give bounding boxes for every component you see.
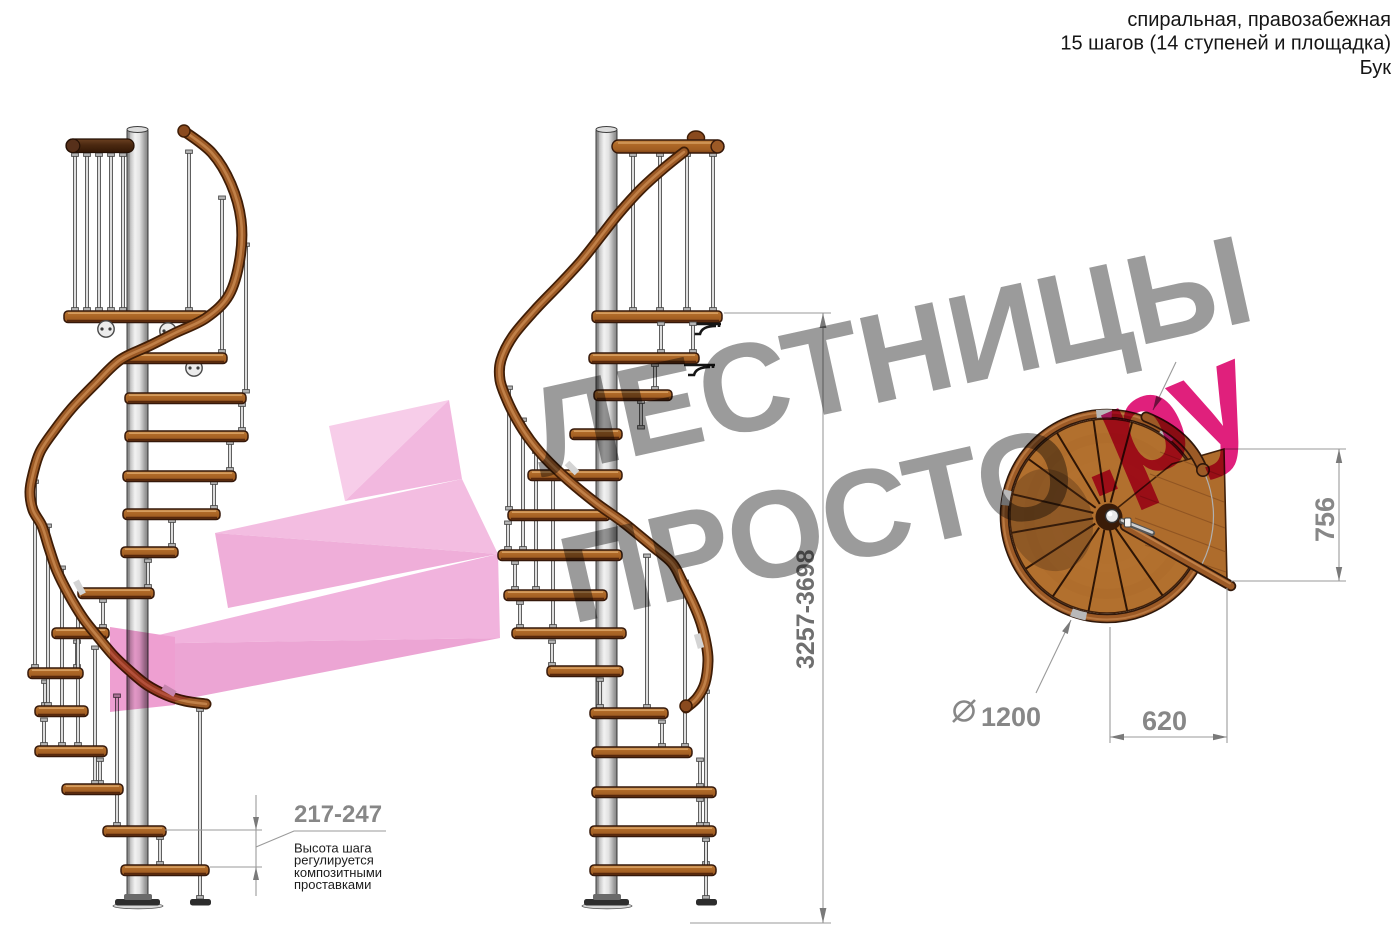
svg-text:спиральная, правозабежная: спиральная, правозабежная bbox=[1127, 9, 1391, 31]
svg-text:1200: 1200 bbox=[981, 702, 1041, 732]
svg-text:620: 620 bbox=[1142, 706, 1187, 736]
svg-text:756: 756 bbox=[1310, 497, 1340, 542]
svg-text:Высота шагарегулируетсякомпози: Высота шагарегулируетсякомпозитнымипрост… bbox=[294, 841, 382, 893]
svg-text:Бук: Бук bbox=[1360, 57, 1392, 79]
svg-text:15 шагов (14 ступеней и площад: 15 шагов (14 ступеней и площадка) bbox=[1060, 33, 1391, 55]
svg-text:217-247: 217-247 bbox=[294, 801, 382, 828]
